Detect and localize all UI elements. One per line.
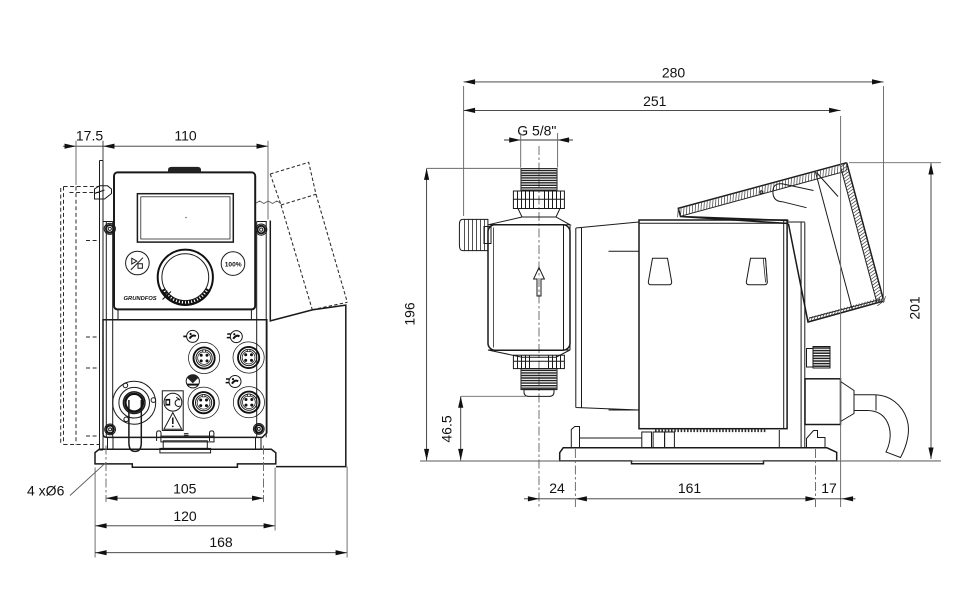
svg-text:24: 24 [549, 480, 565, 496]
svg-text:17: 17 [821, 480, 837, 496]
svg-text:251: 251 [643, 93, 667, 109]
svg-text:120: 120 [173, 508, 197, 524]
svg-text:G 5/8": G 5/8" [517, 122, 556, 138]
svg-text:105: 105 [173, 481, 197, 497]
svg-text:GRUNDFOS: GRUNDFOS [124, 296, 157, 302]
svg-text:46.5: 46.5 [439, 415, 455, 442]
svg-text:110: 110 [174, 128, 197, 144]
svg-text:100%: 100% [225, 262, 242, 269]
svg-text:17.5: 17.5 [76, 128, 103, 144]
svg-text:201: 201 [907, 296, 923, 320]
svg-text:280: 280 [662, 64, 686, 80]
svg-text:196: 196 [402, 302, 418, 326]
svg-text:168: 168 [209, 534, 233, 550]
svg-text:4 xØ6: 4 xØ6 [27, 483, 65, 499]
svg-text:161: 161 [678, 480, 702, 496]
